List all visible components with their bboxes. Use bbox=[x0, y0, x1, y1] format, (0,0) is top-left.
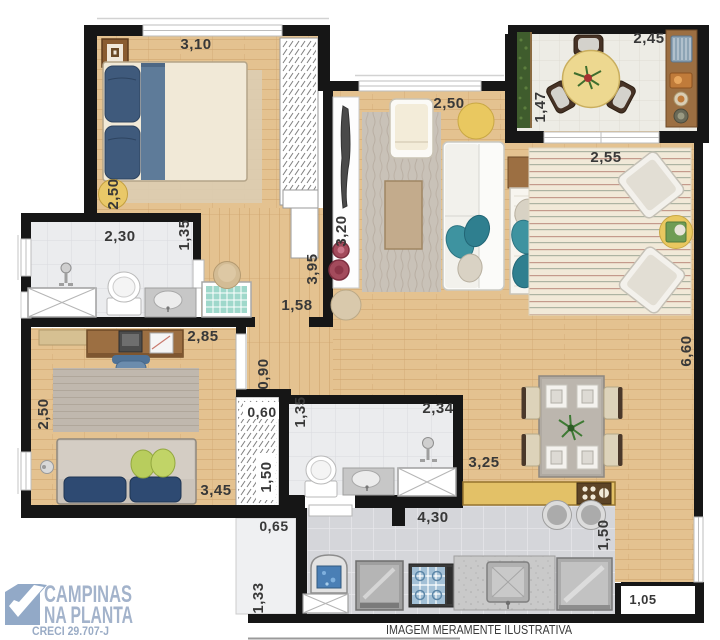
svg-text:1,47: 1,47 bbox=[532, 91, 549, 122]
svg-text:3,10: 3,10 bbox=[180, 36, 211, 53]
svg-text:IMAGEM MERAMENTE ILUSTRATIVA: IMAGEM MERAMENTE ILUSTRATIVA bbox=[386, 622, 572, 637]
svg-text:2,30: 2,30 bbox=[104, 228, 135, 245]
svg-text:3,95: 3,95 bbox=[304, 253, 321, 284]
svg-text:2,55: 2,55 bbox=[590, 149, 621, 166]
svg-text:2,45: 2,45 bbox=[633, 30, 664, 47]
svg-text:2,34: 2,34 bbox=[422, 400, 453, 417]
svg-text:2,50: 2,50 bbox=[433, 95, 464, 112]
svg-text:3,20: 3,20 bbox=[333, 215, 350, 246]
svg-text:1,05: 1,05 bbox=[629, 592, 656, 607]
svg-text:0,60: 0,60 bbox=[247, 404, 276, 420]
svg-text:1,58: 1,58 bbox=[281, 297, 312, 314]
svg-text:0,90: 0,90 bbox=[255, 358, 272, 389]
svg-text:4,30: 4,30 bbox=[417, 509, 448, 526]
svg-text:2,50: 2,50 bbox=[105, 178, 122, 209]
svg-text:1,35: 1,35 bbox=[176, 219, 193, 250]
svg-text:1,35: 1,35 bbox=[292, 396, 309, 427]
svg-text:NA PLANTA: NA PLANTA bbox=[44, 602, 133, 629]
svg-text:3,25: 3,25 bbox=[468, 454, 499, 471]
svg-text:2,50: 2,50 bbox=[35, 398, 52, 429]
svg-text:2,85: 2,85 bbox=[187, 328, 218, 345]
svg-text:CRECI 29.707-J: CRECI 29.707-J bbox=[32, 626, 109, 638]
svg-text:3,45: 3,45 bbox=[200, 482, 231, 499]
svg-text:6,60: 6,60 bbox=[678, 335, 695, 366]
svg-text:1,50: 1,50 bbox=[258, 461, 275, 492]
svg-text:1,50: 1,50 bbox=[595, 519, 612, 550]
svg-text:0,65: 0,65 bbox=[259, 518, 288, 534]
svg-text:1,33: 1,33 bbox=[250, 582, 267, 613]
